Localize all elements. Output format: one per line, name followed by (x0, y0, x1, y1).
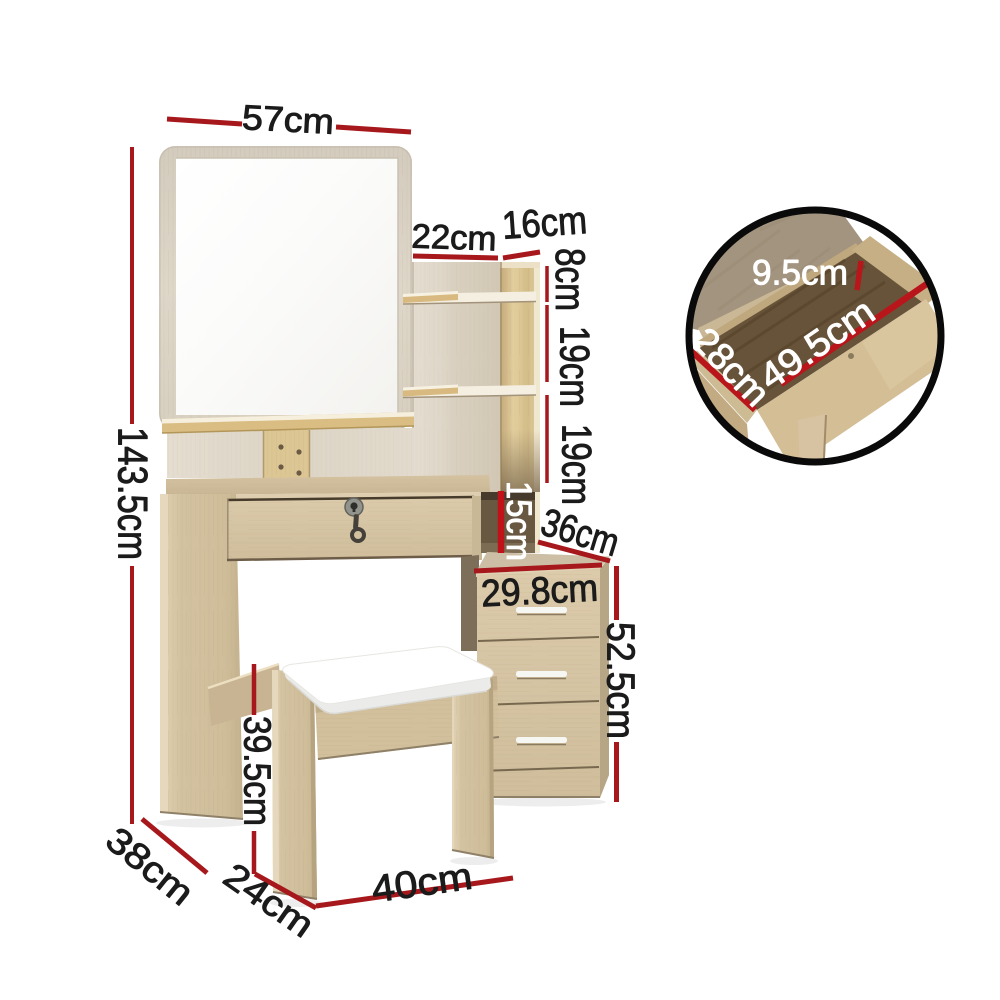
svg-text:22cm: 22cm (411, 218, 497, 259)
svg-text:19cm: 19cm (552, 326, 599, 407)
svg-text:29.8cm: 29.8cm (480, 567, 599, 615)
svg-text:19cm: 19cm (554, 424, 601, 505)
svg-text:143.5cm: 143.5cm (110, 427, 157, 560)
svg-text:9.5cm: 9.5cm (752, 254, 848, 293)
svg-text:57cm: 57cm (241, 98, 335, 142)
svg-text:8cm: 8cm (547, 248, 594, 311)
svg-text:16cm: 16cm (501, 199, 589, 248)
svg-text:52.5cm: 52.5cm (599, 622, 642, 739)
svg-text:15cm: 15cm (499, 481, 538, 561)
svg-text:39.5cm: 39.5cm (236, 716, 278, 826)
